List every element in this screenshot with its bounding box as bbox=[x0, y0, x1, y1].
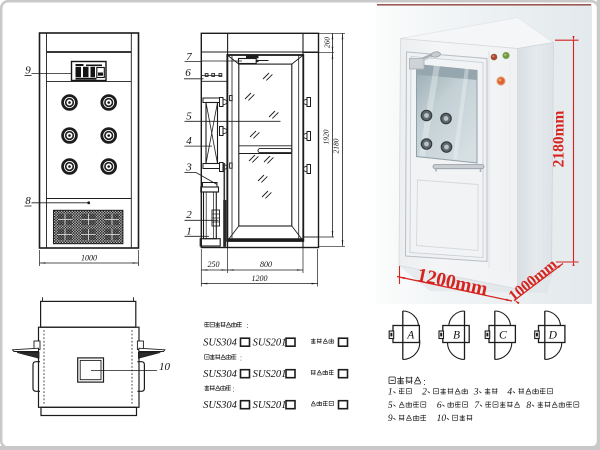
svg-text:SUS201: SUS201 bbox=[253, 338, 287, 349]
svg-text:250: 250 bbox=[208, 260, 220, 269]
svg-text:800: 800 bbox=[260, 260, 272, 269]
svg-text:1: 1 bbox=[186, 226, 192, 238]
svg-text:2: 2 bbox=[422, 388, 427, 398]
svg-text:1200: 1200 bbox=[252, 274, 268, 283]
svg-text:A: A bbox=[406, 330, 415, 342]
svg-text:8: 8 bbox=[526, 401, 531, 411]
svg-text:D: D bbox=[548, 330, 558, 342]
svg-text:SUS304: SUS304 bbox=[203, 338, 238, 349]
svg-text:8: 8 bbox=[25, 195, 31, 207]
svg-text:2180: 2180 bbox=[332, 138, 341, 153]
svg-text:6: 6 bbox=[437, 401, 442, 411]
svg-text:SUS304: SUS304 bbox=[203, 369, 238, 380]
svg-text:SUS201: SUS201 bbox=[253, 369, 287, 380]
svg-text:1920: 1920 bbox=[322, 129, 331, 144]
svg-text:B: B bbox=[453, 330, 460, 342]
svg-text:5: 5 bbox=[388, 401, 393, 411]
svg-text:SUS201: SUS201 bbox=[253, 400, 287, 411]
svg-text:10: 10 bbox=[437, 414, 447, 424]
svg-text:1: 1 bbox=[388, 388, 393, 398]
svg-text::: : bbox=[423, 377, 426, 387]
svg-text:6: 6 bbox=[185, 67, 191, 79]
svg-text:9: 9 bbox=[388, 414, 393, 424]
svg-text:SUS304: SUS304 bbox=[203, 400, 238, 411]
svg-text:2: 2 bbox=[186, 209, 192, 221]
svg-text:4: 4 bbox=[186, 135, 192, 147]
svg-text:5: 5 bbox=[186, 111, 192, 123]
svg-text:3: 3 bbox=[185, 162, 192, 174]
svg-text:9: 9 bbox=[25, 65, 31, 77]
svg-text:C: C bbox=[499, 330, 507, 342]
svg-text::: : bbox=[247, 323, 249, 330]
svg-text:260: 260 bbox=[323, 37, 332, 49]
svg-text::: : bbox=[240, 356, 242, 363]
svg-text::: : bbox=[233, 387, 235, 394]
svg-text:10: 10 bbox=[159, 361, 171, 373]
svg-text:4: 4 bbox=[507, 388, 512, 398]
svg-text:1000: 1000 bbox=[81, 254, 97, 263]
svg-text:3: 3 bbox=[473, 388, 479, 398]
svg-text:2180mm: 2180mm bbox=[551, 111, 568, 168]
